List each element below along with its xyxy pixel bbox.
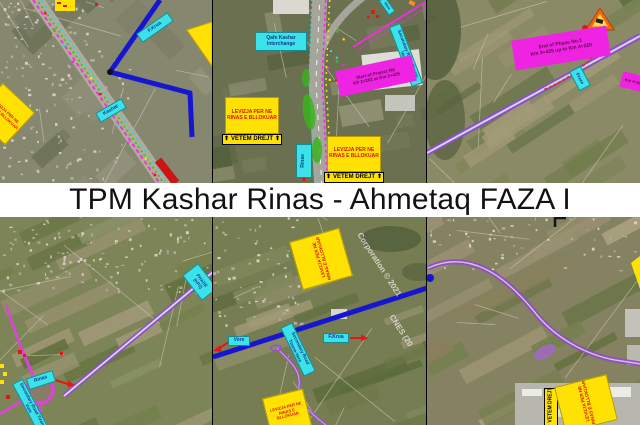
label-qafe-kashar-interchange: Qafe Kashar Interchange xyxy=(255,32,307,51)
sign-straight-only-label: VETEM DREJT xyxy=(231,136,273,143)
up-arrow-icon: ⬆ xyxy=(377,174,382,181)
sign-straight-only-1: ⬆VETEM DREJT⬆ xyxy=(222,134,282,145)
map-panel-top-left: F.Krua Kashar LEVIZJA PER NE RINAS E BLL… xyxy=(0,0,212,183)
up-arrow-icon: ⬆ xyxy=(326,174,331,181)
map-panel-bottom-left: Rinas Secondary Road Tirane-Vore PHASE (… xyxy=(0,217,212,425)
label-village-fkrua: F.Krua xyxy=(323,333,349,343)
sign-straight-only-text: ⬆ VETEM DREJT xyxy=(548,388,554,425)
up-arrow-icon: ⬆ xyxy=(275,136,280,143)
map-panel-bottom-middle: LEVIZJA PER NE RINAS E BLLOKUAR Vore F.K… xyxy=(213,217,426,425)
sign-straight-only-2: ⬆VETEM DREJT⬆ xyxy=(324,172,384,183)
label-village-vore: Vore xyxy=(228,336,250,346)
sign-straight-only-label: VETEM DREJT xyxy=(333,174,375,181)
satellite-background xyxy=(427,0,640,183)
sign-blocked-2: LEVIZJA PER NE RINAS E BLLOKUAR xyxy=(327,136,381,172)
title-banner: TPM Kashar Rinas - Ahmetaq FAZA I xyxy=(0,183,640,217)
up-arrow-icon: ⬆ xyxy=(224,136,229,143)
page-title: TPM Kashar Rinas - Ahmetaq FAZA I xyxy=(69,183,571,217)
satellite-background xyxy=(0,217,212,425)
tpm-map-collage: F.Krua Kashar LEVIZJA PER NE RINAS E BLL… xyxy=(0,0,640,425)
label-rinas-vertical: Rinas xyxy=(296,144,312,178)
sign-blocked-text: LEVIZJA PER NE RINAS E BLLOKUAR xyxy=(576,381,597,425)
map-panel-bottom-right: ⬆ VETEM DREJT LEVIZJA PER NE RINAS E BLL… xyxy=(427,217,640,425)
satellite-background xyxy=(0,0,212,183)
sign-blocked-text: LEVIZJA PER NE RINAS E BLLOKUAR xyxy=(310,236,332,282)
label-rinas-vertical-text: Rinas xyxy=(301,154,307,168)
map-panel-top-right: End of Phase No.1 Km 3+425 up to Km 4+22… xyxy=(427,0,640,183)
map-panel-top-middle: Qafe Kashar Interchange Secondary Road T… xyxy=(213,0,426,183)
sign-blocked-1: LEVIZJA PER NE RINAS E BLLOKUAR xyxy=(225,97,279,134)
